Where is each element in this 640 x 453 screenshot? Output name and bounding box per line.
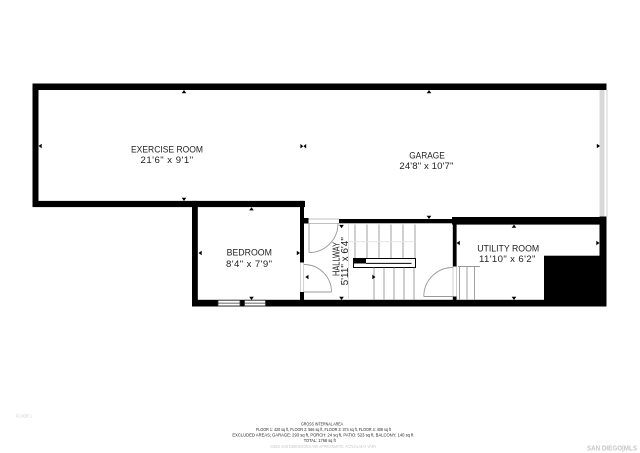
svg-text:24'8" x 10'7": 24'8" x 10'7" — [399, 161, 453, 172]
svg-text:11'10" x 6'2": 11'10" x 6'2" — [479, 254, 535, 265]
svg-text:21'6" x 9'1": 21'6" x 9'1" — [141, 155, 194, 166]
svg-text:FLOOR 1: FLOOR 1 — [16, 413, 32, 418]
svg-text:TOTAL: 1768 sq ft: TOTAL: 1768 sq ft — [304, 438, 337, 443]
svg-text:8'4" x 7'9": 8'4" x 7'9" — [226, 259, 272, 270]
svg-text:UTILITY ROOM: UTILITY ROOM — [477, 243, 539, 254]
svg-text:SAN DIEGO|MLS: SAN DIEGO|MLS — [587, 443, 637, 452]
svg-text:SIZES AND DIMENSIONS ARE APPRO: SIZES AND DIMENSIONS ARE APPROXIMATE, AC… — [270, 444, 376, 449]
svg-text:FLOOR 1: 420 sq ft, FLOOR 2: 5: FLOOR 1: 420 sq ft, FLOOR 2: 566 sq ft, … — [256, 427, 392, 432]
svg-text:GROSS INTERNAL AREA: GROSS INTERNAL AREA — [301, 421, 343, 426]
svg-text:5'11" x 6'4": 5'11" x 6'4" — [340, 237, 351, 286]
svg-text:EXCLUDED AREAS; GARAGE: 293 sq: EXCLUDED AREAS; GARAGE: 293 sq ft, PORCH… — [232, 433, 414, 438]
svg-text:BEDROOM: BEDROOM — [227, 247, 272, 258]
svg-text:GARAGE: GARAGE — [409, 150, 445, 161]
